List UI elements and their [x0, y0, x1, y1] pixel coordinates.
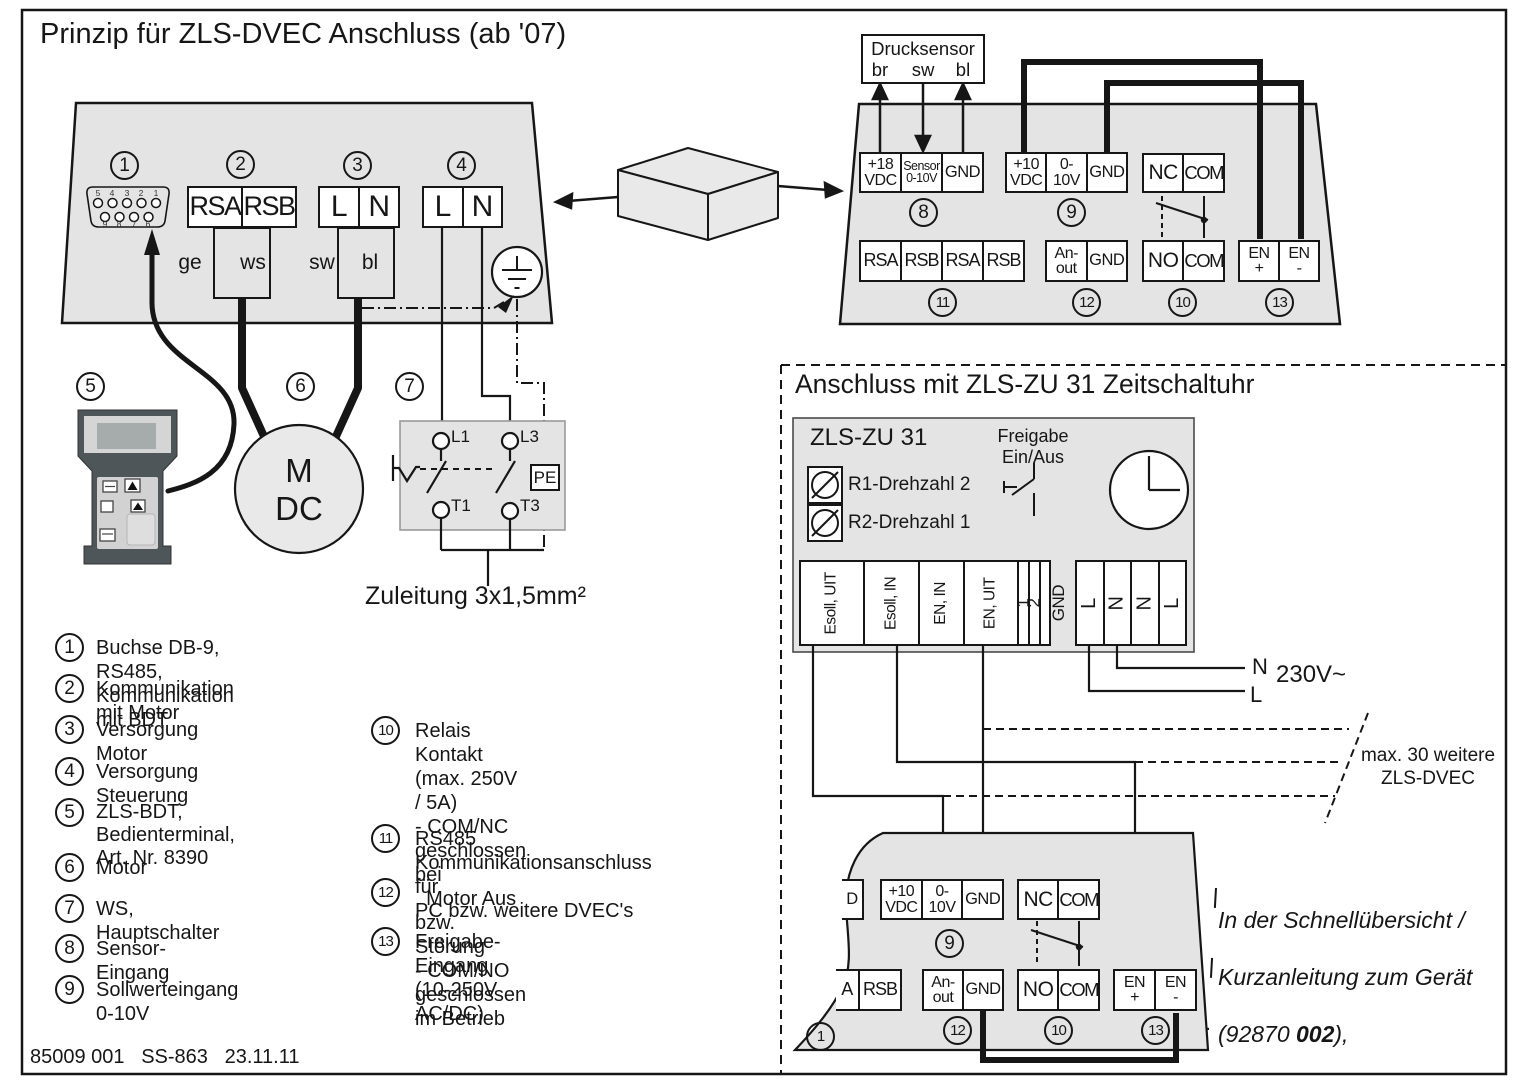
note-line: finden sich weitere [1218, 1077, 1472, 1080]
legend-num: 13 [371, 927, 400, 956]
terminal-nc: NC [1019, 881, 1057, 918]
callout-11b-partial: 1 [806, 1022, 835, 1051]
callout-4: 4 [447, 151, 476, 180]
legend-num: 5 [55, 798, 84, 827]
callout-12b: 12 [943, 1016, 972, 1045]
terminal-rsb: RSB [241, 188, 295, 226]
legend-text: Freigabe-Eingang (10-250V AC/DC) [415, 930, 501, 1026]
db9-pin: 5 [92, 188, 104, 198]
pot-symbols [808, 467, 842, 541]
document-footer: 85009 001 SS-863 23.11.11 [30, 1046, 299, 1069]
sensor-wire-bl: bl [956, 59, 970, 81]
wiring-diagram-page: Prinzip für ZLS-DVEC Anschluss (ab '07) … [0, 0, 1528, 1080]
pole-t1: T1 [451, 496, 471, 516]
legend-num: 3 [55, 715, 84, 744]
terminal-block-mains: L N [422, 186, 503, 228]
callout-10b: 10 [1044, 1016, 1073, 1045]
callout-11: 11 [928, 288, 957, 317]
note-bold-number: 002 [1296, 1021, 1334, 1047]
sensor-wire-br: br [872, 59, 888, 81]
terminal-com: COM [1057, 881, 1098, 918]
terminal-en-plus: EN + [1115, 971, 1154, 1009]
panel-title: Anschluss mit ZLS-ZU 31 Zeitschaltuhr [795, 369, 1254, 400]
terminal-rsa: RSA [189, 188, 241, 226]
legend-text: Versorgung Motor [96, 718, 198, 766]
terminal-rsa: RSA [861, 242, 900, 280]
relay-no-block: NO COM [1142, 240, 1225, 282]
terminal-l: L [424, 188, 462, 226]
terminal-gnd: GND [1086, 154, 1126, 191]
legend-num: 9 [55, 975, 84, 1004]
zu31-label: ZLS-ZU 31 [810, 424, 927, 452]
pole-t3: T3 [520, 496, 540, 516]
relay-nc-block: NC COM [1142, 153, 1225, 193]
terminal-10vdc: +10 VDC [882, 881, 921, 918]
terminal-0-10v: 0- 10V [921, 881, 962, 918]
analog-out-block: An- out GND [1045, 240, 1128, 282]
cable-box-3d [618, 148, 778, 240]
terminal-gnd: GND [1039, 562, 1077, 644]
terminal-esoll-uit: Esoll, UIT [801, 562, 863, 644]
partial-gnd-cell: D [842, 879, 864, 920]
terminal-18vdc: +18 VDC [861, 154, 900, 191]
terminal-rsa-partial: A [836, 971, 858, 1009]
callout-3: 3 [343, 151, 372, 180]
db9-pin: 9 [99, 219, 111, 229]
dvec2-partial-rs485: A RSB [836, 969, 902, 1011]
callout-8: 8 [909, 198, 938, 227]
pole-l1: L1 [451, 427, 470, 447]
terminal-en-minus: EN - [1278, 242, 1318, 280]
dvec2-body [795, 833, 1208, 1050]
callout-2: 2 [226, 150, 255, 179]
zu31-mains-terminals: L N N L [1075, 560, 1187, 646]
terminal-esoll-in: Esoll, IN [863, 562, 918, 644]
note-line: Kurzanleitung zum Gerät [1218, 963, 1472, 992]
terminal-block-rs485: RSA RSB [187, 186, 297, 228]
dvec2-analog-out-block: An- out GND [922, 969, 1004, 1011]
motor-label: M DC [234, 452, 364, 528]
pressure-sensor-title: Drucksensor [863, 38, 983, 60]
terminal-com: COM [1182, 155, 1223, 191]
db9-pin: 4 [106, 188, 118, 198]
terminal-2: 2 [1028, 562, 1039, 644]
callout-12: 12 [1072, 288, 1101, 317]
terminal-n: N [358, 188, 398, 226]
freigabe-label: Freigabe Ein/Aus [990, 426, 1076, 468]
db9-pin: 8 [113, 219, 125, 229]
terminal-rsb: RSB [900, 242, 941, 280]
legend-text: Motor [96, 856, 147, 880]
rs485-block: RSA RSB RSA RSB [859, 240, 1025, 282]
mains-n-label: N [1252, 654, 1268, 680]
terminal-en-plus: EN + [1240, 242, 1278, 280]
legend-num: 12 [371, 878, 400, 907]
terminal-gnd: GND [1086, 242, 1127, 280]
callout-10: 10 [1168, 288, 1197, 317]
legend-num: 2 [55, 674, 84, 703]
terminal-sensor: Sensor 0-10V [900, 154, 941, 191]
wire-color-bl: bl [362, 251, 378, 275]
terminal-gnd: GND [961, 881, 1002, 918]
expansion-note: max. 30 weitere ZLS-DVEC [1358, 745, 1498, 791]
legend-num: 1 [55, 633, 84, 662]
terminal-no: NO [1144, 242, 1182, 280]
terminal-0-10v: 0- 10V [1045, 154, 1085, 191]
pot1-label: R1-Drehzahl 2 [848, 474, 971, 496]
terminal-en-minus: EN - [1154, 971, 1195, 1009]
pole-l3: L3 [520, 427, 539, 447]
callout-9b: 9 [935, 929, 964, 958]
legend-num: 10 [371, 716, 400, 745]
voltage-label: 230V~ [1276, 661, 1346, 689]
terminal-gnd: GND [941, 154, 982, 191]
db9-pin: 3 [121, 188, 133, 198]
legend-num: 8 [55, 934, 84, 963]
zu31-signal-terminals: Esoll, UIT Esoll, IN EN, IN EN, UIT 1 2 … [799, 560, 1051, 646]
note-line: (92870 002), [1218, 1020, 1472, 1049]
terminal-n: N [1130, 562, 1158, 644]
legend-num: 7 [55, 894, 84, 923]
terminal-10vdc: +10 VDC [1007, 154, 1045, 191]
terminal-block-motor-supply: L N [318, 186, 400, 228]
terminal-en-in: EN, IN [918, 562, 963, 644]
pe-terminal: PE [530, 464, 560, 491]
dvec2-relay-no-block: NO COM [1017, 969, 1100, 1011]
db9-pin: 7 [128, 219, 140, 229]
callout-13b: 13 [1141, 1016, 1170, 1045]
wire-color-sw: sw [309, 251, 335, 275]
terminal-no: NO [1019, 971, 1057, 1009]
db9-pin: 6 [142, 219, 154, 229]
terminal-rsb: RSB [858, 971, 900, 1009]
terminal-rsa: RSA [941, 242, 982, 280]
callout-13: 13 [1265, 288, 1294, 317]
db9-pin: 2 [135, 188, 147, 198]
callout-9: 9 [1057, 198, 1086, 227]
terminal-n: N [462, 188, 502, 226]
terminal-anout: An- out [1047, 242, 1086, 280]
dvec2-enable-block: EN + EN - [1113, 969, 1197, 1011]
terminal-n: N [1103, 562, 1131, 644]
enable-block: EN + EN - [1238, 240, 1320, 282]
terminal-l: L [1077, 562, 1103, 644]
wire-color-ws: ws [240, 251, 266, 275]
page-title: Prinzip für ZLS-DVEC Anschluss (ab '07) [40, 18, 566, 51]
legend-num: 6 [55, 853, 84, 882]
clock-icon [1110, 451, 1188, 529]
terminal-rsb: RSB [982, 242, 1023, 280]
setpoint-block: +10 VDC 0- 10V GND [1005, 152, 1128, 193]
terminal-nc: NC [1144, 155, 1182, 191]
callout-7: 7 [395, 372, 424, 401]
pot2-label: R2-Drehzahl 1 [848, 512, 971, 534]
supply-cable-note: Zuleitung 3x1,5mm² [365, 582, 586, 611]
dvec2-relay-nc-block: NC COM [1017, 879, 1100, 920]
legend-num: 11 [371, 824, 400, 853]
dvec2-setpoint-block: +10 VDC 0- 10V GND [880, 879, 1004, 920]
legend-text: RS485 Kommunikationsanschluss für PC bzw… [415, 827, 652, 923]
mains-l-label: L [1250, 682, 1262, 708]
db9-pin: 1 [150, 188, 162, 198]
terminal-gnd: GND [962, 971, 1002, 1009]
note-line: In der Schnellübersicht / [1218, 906, 1472, 935]
hand-terminal [78, 410, 177, 564]
terminal-en-uit: EN, UIT [963, 562, 1017, 644]
terminal-l: L [1158, 562, 1186, 644]
terminal-gnd-partial: D [842, 881, 862, 918]
sensor-wire-sw: sw [912, 59, 935, 81]
reference-note: In der Schnellübersicht / Kurzanleitung … [1218, 877, 1472, 1080]
terminal-anout: An- out [924, 971, 962, 1009]
legend-num: 4 [55, 757, 84, 786]
terminal-com: COM [1057, 971, 1098, 1009]
callout-5: 5 [76, 372, 105, 401]
legend-text: Sollwerteingang 0-10V [96, 978, 238, 1026]
callout-1: 1 [110, 151, 139, 180]
callout-6: 6 [286, 372, 315, 401]
wire-color-ge: ge [178, 251, 201, 275]
ground-symbol [492, 247, 542, 297]
sensor-input-block: +18 VDC Sensor 0-10V GND [859, 152, 984, 193]
terminal-com: COM [1182, 242, 1223, 280]
terminal-l: L [320, 188, 358, 226]
